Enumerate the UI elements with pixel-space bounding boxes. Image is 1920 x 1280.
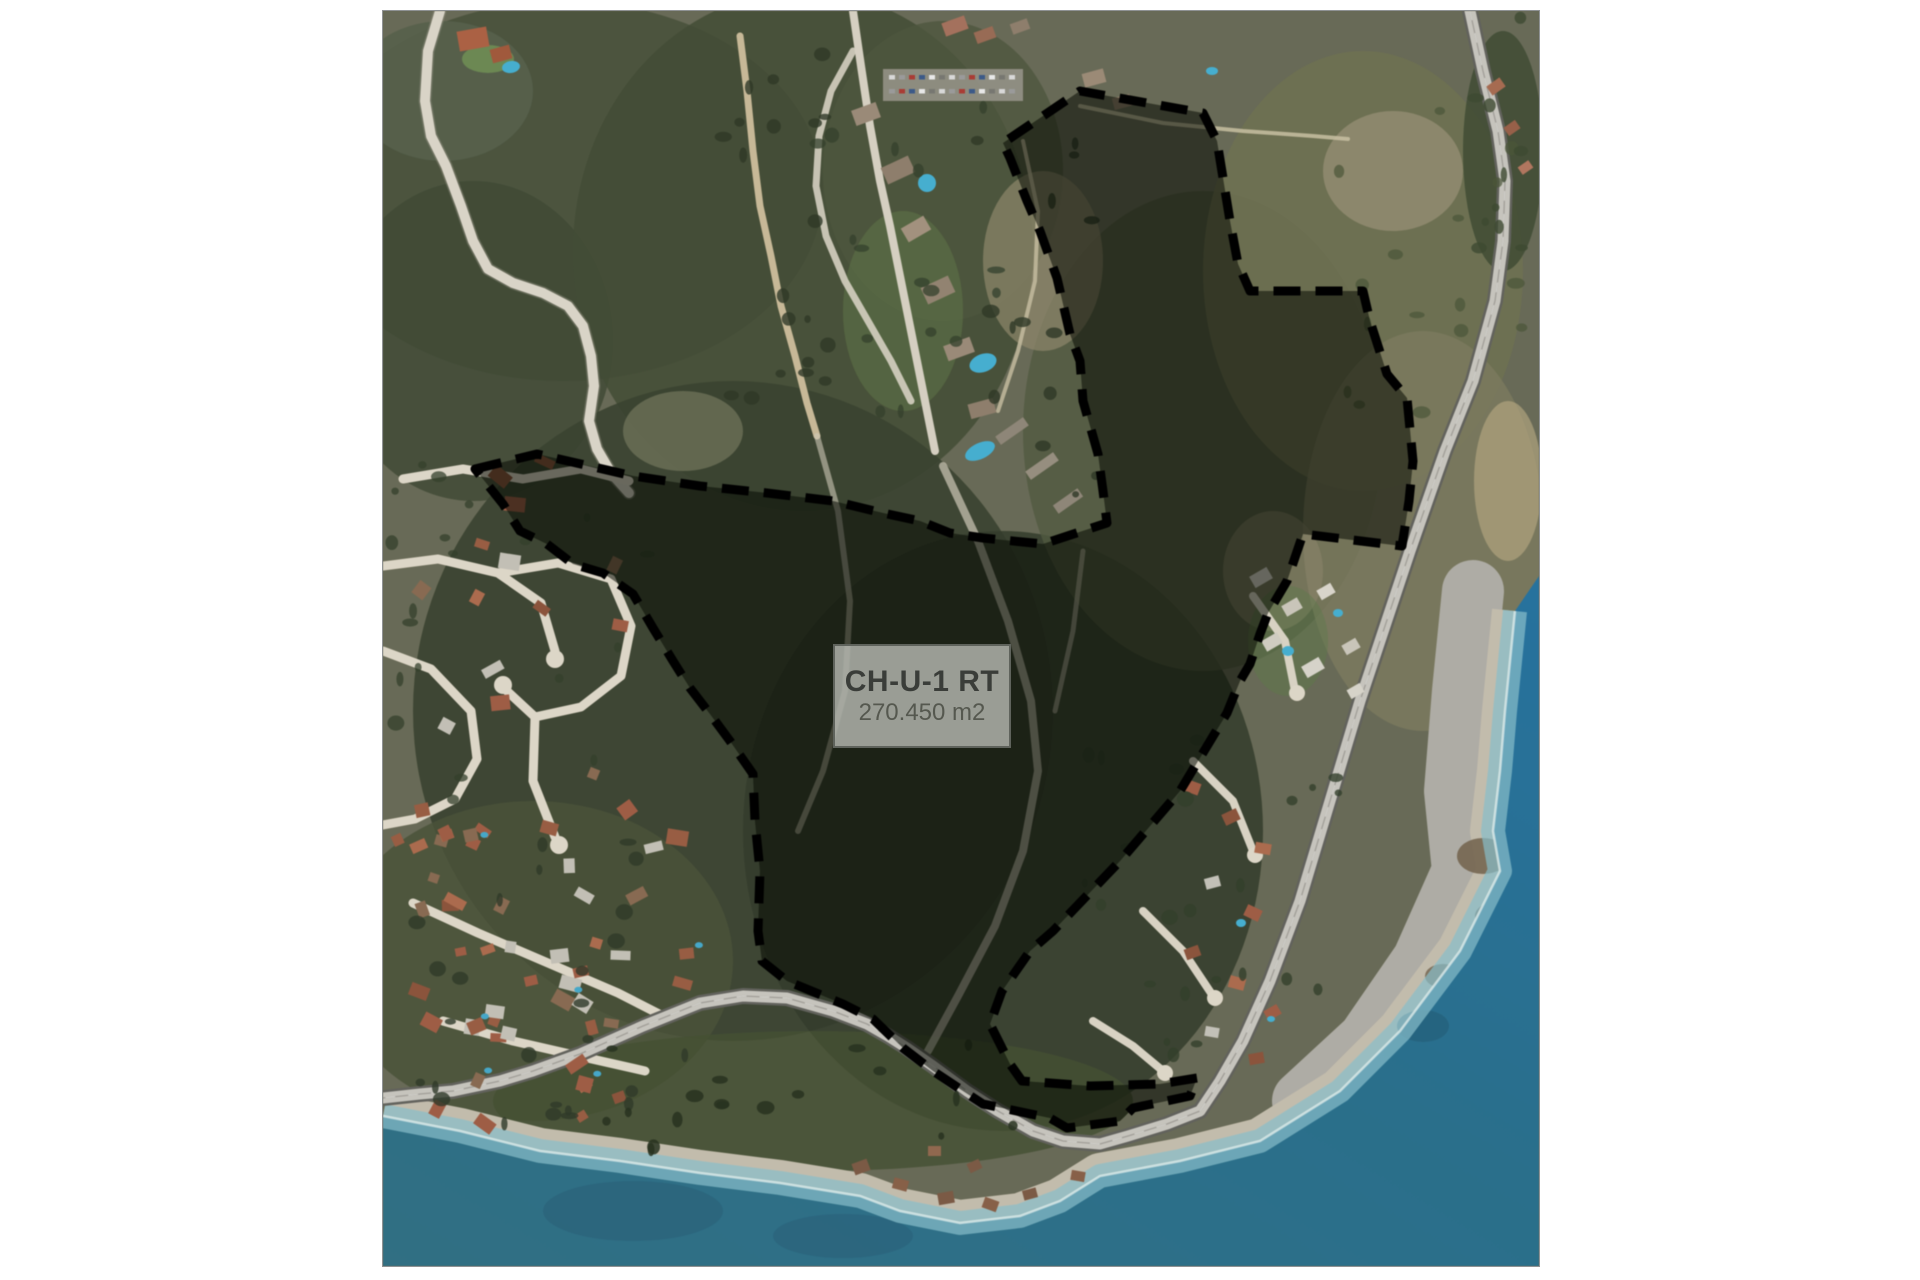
tree [982, 305, 1000, 318]
tree [1335, 789, 1343, 796]
car [979, 75, 985, 80]
tree [1035, 441, 1051, 452]
tree [913, 164, 924, 178]
tree [452, 972, 468, 985]
tree [724, 390, 739, 400]
tree [898, 404, 904, 418]
tree [814, 48, 830, 62]
tree [1435, 107, 1446, 115]
tree [987, 267, 1005, 274]
tree [602, 1117, 610, 1126]
aerial-photo: CH-U-1 RT 270.450 m2 [382, 10, 1540, 1267]
car [899, 89, 905, 94]
tree [1164, 1038, 1171, 1046]
tree [1281, 973, 1292, 986]
tree [501, 1117, 507, 1130]
house [550, 948, 570, 964]
tree [1191, 1040, 1203, 1047]
tree [590, 755, 597, 766]
house [504, 940, 516, 953]
tree [1287, 796, 1298, 806]
tree [1452, 215, 1464, 222]
tree [672, 1112, 682, 1128]
car [969, 75, 975, 80]
tree [825, 128, 840, 143]
house [666, 828, 690, 847]
tree [465, 500, 474, 508]
car [929, 75, 935, 80]
tree [521, 1047, 536, 1063]
tree [1309, 784, 1316, 791]
tree [1482, 218, 1489, 226]
car [949, 75, 955, 80]
tree [1492, 177, 1502, 187]
tree [625, 1108, 632, 1118]
tree [777, 288, 789, 303]
tree [1515, 12, 1527, 24]
tree [391, 488, 398, 495]
tree [402, 618, 418, 626]
tree [616, 904, 633, 920]
tree [416, 1079, 425, 1087]
tree [387, 715, 404, 730]
car [949, 89, 955, 94]
tree [1180, 986, 1190, 1001]
tree [1144, 980, 1156, 987]
car [1009, 75, 1015, 80]
tree [681, 1048, 688, 1062]
house [498, 552, 521, 571]
tree [810, 138, 826, 148]
tree [607, 933, 624, 948]
house [610, 950, 630, 960]
pool [481, 1013, 489, 1019]
tree [454, 774, 468, 782]
car [959, 75, 965, 80]
tree [429, 961, 446, 976]
tree [798, 368, 814, 377]
tree [848, 1044, 865, 1052]
tree [1046, 328, 1063, 339]
tree [445, 1019, 456, 1025]
tree [565, 1105, 572, 1115]
pool [593, 1071, 601, 1077]
tree [1483, 98, 1495, 112]
tree [1454, 324, 1468, 337]
tree [431, 471, 446, 482]
parking-lot [883, 69, 1023, 101]
tree [792, 1090, 804, 1099]
tree [925, 327, 936, 337]
tree [576, 966, 589, 976]
car [989, 89, 995, 94]
tree [802, 357, 814, 368]
tree [1471, 242, 1486, 253]
car [999, 89, 1005, 94]
tree [873, 1066, 886, 1075]
tree [1313, 983, 1322, 995]
tree [550, 1102, 562, 1108]
parcel-label: CH-U-1 RT 270.450 m2 [833, 644, 1011, 748]
car [919, 75, 925, 80]
tree [971, 136, 984, 145]
tree [744, 391, 760, 405]
tree [629, 852, 644, 866]
tree [555, 674, 564, 683]
tree [536, 865, 542, 875]
car [999, 75, 1005, 80]
pool [1333, 609, 1343, 617]
tree [849, 235, 856, 246]
tree [979, 101, 987, 114]
tree [537, 837, 547, 852]
tree [408, 916, 425, 930]
tree [767, 119, 781, 133]
car [889, 75, 895, 80]
tree [433, 1092, 450, 1106]
pool [1282, 646, 1294, 656]
tree [1413, 406, 1431, 418]
tree [1515, 244, 1528, 251]
tree [620, 839, 637, 846]
car [979, 89, 985, 94]
tree [448, 550, 458, 556]
tree [497, 893, 503, 907]
tree [875, 405, 885, 417]
house [490, 694, 511, 711]
house [928, 1146, 941, 1156]
tree [1236, 878, 1245, 892]
car [989, 75, 995, 80]
tree [447, 795, 459, 805]
pool [484, 1067, 492, 1073]
tree [385, 535, 398, 550]
tree [782, 312, 796, 326]
tree [1184, 904, 1197, 918]
tree [923, 285, 940, 296]
tree [1409, 312, 1424, 319]
car [1009, 89, 1015, 94]
tree [808, 214, 823, 228]
tree [989, 390, 1001, 404]
tree [440, 534, 451, 541]
satellite-scene [383, 11, 1539, 1266]
tree [891, 142, 899, 156]
tree [409, 603, 417, 618]
parked-cars [883, 69, 1023, 101]
tree [950, 336, 963, 347]
car [909, 89, 915, 94]
tree [1072, 491, 1079, 497]
tree [716, 1101, 729, 1109]
tree [712, 1076, 728, 1084]
tree [914, 278, 930, 287]
house [679, 947, 695, 959]
car [969, 89, 975, 94]
tree [1239, 968, 1247, 982]
tree [715, 132, 732, 142]
tree [1516, 323, 1527, 331]
pool [1267, 1016, 1275, 1022]
car [899, 75, 905, 80]
car [929, 89, 935, 94]
house [563, 858, 575, 873]
tree [1211, 976, 1221, 983]
tree [938, 1132, 944, 1139]
tree [1010, 321, 1016, 333]
pool [1236, 919, 1246, 927]
tree [808, 118, 822, 128]
car [939, 89, 945, 94]
tree [745, 80, 753, 94]
tree [686, 1090, 704, 1102]
tree [1492, 203, 1500, 211]
tree [415, 663, 422, 672]
tree [432, 1081, 439, 1094]
tree [953, 1091, 960, 1107]
tree [734, 118, 744, 127]
tree [1501, 167, 1507, 182]
tree [775, 370, 785, 378]
car [909, 75, 915, 80]
tree [861, 334, 873, 343]
tree [768, 74, 780, 84]
tree [804, 315, 810, 323]
tree [820, 337, 836, 352]
tree [1168, 1047, 1180, 1062]
tree [1455, 298, 1465, 312]
tree [606, 1045, 617, 1052]
tree [418, 461, 426, 469]
pool [1206, 67, 1218, 75]
tree [1494, 220, 1503, 234]
car [919, 89, 925, 94]
tree [614, 642, 622, 652]
tree [648, 1143, 655, 1156]
tree [1507, 278, 1525, 289]
tree [1328, 773, 1343, 782]
tree [1161, 910, 1178, 925]
tree [625, 1085, 638, 1097]
tree [819, 114, 832, 120]
tree [1177, 791, 1194, 807]
tree [1467, 93, 1484, 102]
tree [757, 1101, 775, 1114]
tree [582, 1035, 593, 1043]
tree [739, 148, 747, 163]
parcel-code: CH-U-1 RT [845, 667, 1000, 697]
tree [1096, 899, 1107, 911]
tree [573, 999, 589, 1008]
car [939, 75, 945, 80]
parcel-area-value: 270.450 m2 [859, 701, 986, 725]
tree [545, 1108, 561, 1121]
tree [854, 244, 869, 251]
tree [819, 376, 832, 385]
tree [1388, 249, 1403, 259]
car [959, 89, 965, 94]
tree [1044, 387, 1057, 400]
page: CH-U-1 RT 270.450 m2 [0, 0, 1920, 1280]
tree [992, 288, 1001, 298]
tree [1514, 146, 1528, 156]
car [889, 89, 895, 94]
pool [480, 832, 488, 838]
pool [574, 987, 582, 993]
pool [695, 942, 703, 948]
tree [1008, 1121, 1017, 1131]
tree [396, 672, 403, 686]
tree [1334, 165, 1344, 178]
tree [1014, 317, 1031, 327]
